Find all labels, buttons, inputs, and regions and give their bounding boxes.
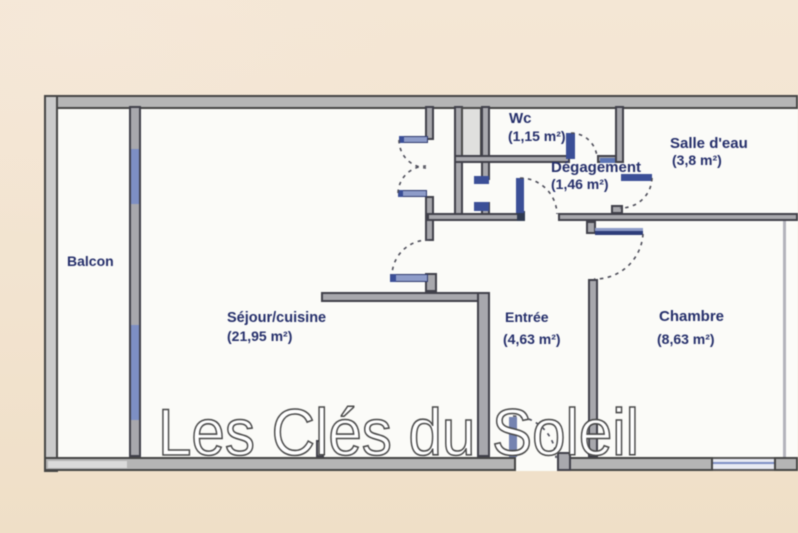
svg-text:Les Clés du Soleil: Les Clés du Soleil	[158, 395, 639, 469]
